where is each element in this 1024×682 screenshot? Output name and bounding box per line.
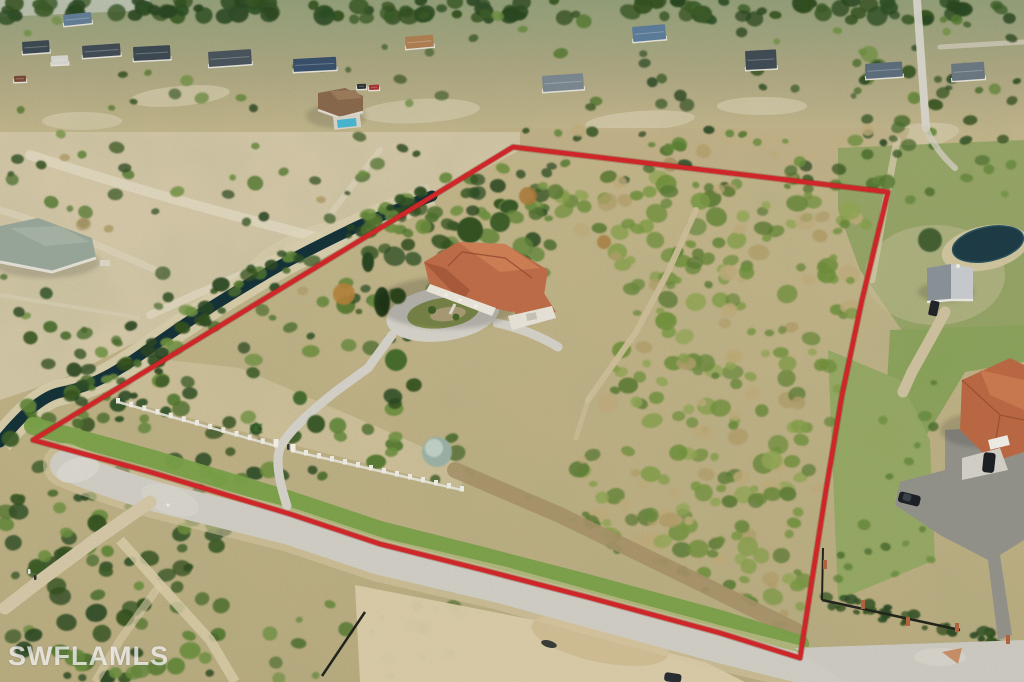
watermark-text: SWFLAMLS	[8, 641, 169, 672]
photo-grain	[0, 0, 1024, 682]
aerial-photo: SWFLAMLS	[0, 0, 1024, 682]
